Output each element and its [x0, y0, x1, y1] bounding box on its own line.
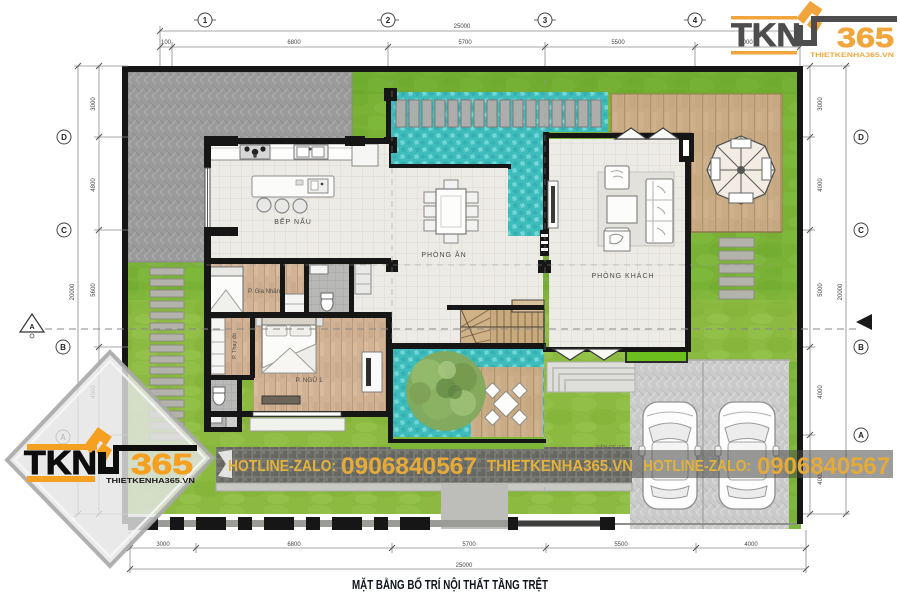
svg-text:5700: 5700 — [458, 40, 472, 46]
svg-text:4800: 4800 — [91, 178, 97, 192]
svg-text:B: B — [60, 343, 66, 352]
svg-text:PHÒNG ĂN: PHÒNG ĂN — [421, 250, 466, 259]
svg-text:THIETKENHA365.VN: THIETKENHA365.VN — [487, 458, 633, 475]
svg-text:D: D — [858, 133, 864, 142]
svg-text:4000: 4000 — [818, 385, 824, 399]
svg-text:HOTLINE-ZALO:: HOTLINE-ZALO: — [643, 458, 751, 475]
svg-text:20000: 20000 — [70, 283, 76, 300]
svg-text:5600: 5600 — [91, 283, 97, 297]
svg-text:D: D — [61, 133, 67, 142]
svg-text:TKN: TKN — [731, 17, 801, 53]
svg-text:HOTLINE-ZALO:: HOTLINE-ZALO: — [228, 458, 336, 475]
svg-text:C: C — [61, 226, 67, 235]
svg-text:THIETKENHA365.VN: THIETKENHA365.VN — [810, 52, 894, 59]
svg-text:4000: 4000 — [744, 542, 758, 548]
svg-text:2: 2 — [386, 16, 391, 25]
svg-text:5500: 5500 — [614, 542, 628, 548]
svg-text:6800: 6800 — [287, 40, 301, 46]
svg-text:B: B — [858, 343, 864, 352]
svg-text:3000: 3000 — [818, 97, 824, 111]
svg-text:4000: 4000 — [818, 178, 824, 192]
svg-text:P. NGỦ 1: P. NGỦ 1 — [296, 375, 323, 384]
svg-text:100: 100 — [161, 40, 172, 46]
svg-text:PHÒNG KHÁCH: PHÒNG KHÁCH — [591, 271, 654, 280]
svg-text:1: 1 — [203, 16, 208, 25]
svg-text:MẶT BẰNG BỐ TRÍ NỘI THẤT TẦNG: MẶT BẰNG BỐ TRÍ NỘI THẤT TẦNG TRỆT — [352, 577, 548, 592]
svg-text:25000: 25000 — [456, 563, 473, 569]
svg-text:5000: 5000 — [818, 283, 824, 297]
svg-text:THIETKENHA365.VN: THIETKENHA365.VN — [106, 476, 195, 485]
svg-text:5500: 5500 — [611, 40, 625, 46]
svg-text:3: 3 — [543, 16, 548, 25]
svg-text:SÂN ĐỂ XE: SÂN ĐỂ XE — [596, 444, 626, 451]
svg-text:20000: 20000 — [838, 283, 844, 300]
svg-text:0906840567: 0906840567 — [757, 453, 890, 480]
svg-text:6800: 6800 — [287, 542, 301, 548]
svg-text:4: 4 — [693, 16, 698, 25]
svg-text:P. Thay đồ: P. Thay đồ — [232, 333, 238, 359]
svg-text:A: A — [858, 431, 864, 440]
svg-text:TKN: TKN — [24, 444, 97, 481]
svg-text:3000: 3000 — [91, 97, 97, 111]
svg-text:25000: 25000 — [454, 24, 471, 30]
svg-text:C: C — [858, 226, 864, 235]
svg-text:3000: 3000 — [156, 542, 170, 548]
svg-text:A: A — [29, 324, 34, 331]
svg-text:365: 365 — [837, 22, 894, 53]
svg-text:0906840567: 0906840567 — [341, 453, 477, 480]
svg-text:5700: 5700 — [462, 542, 476, 548]
svg-text:P. Gia Nhân: P. Gia Nhân — [248, 289, 280, 295]
